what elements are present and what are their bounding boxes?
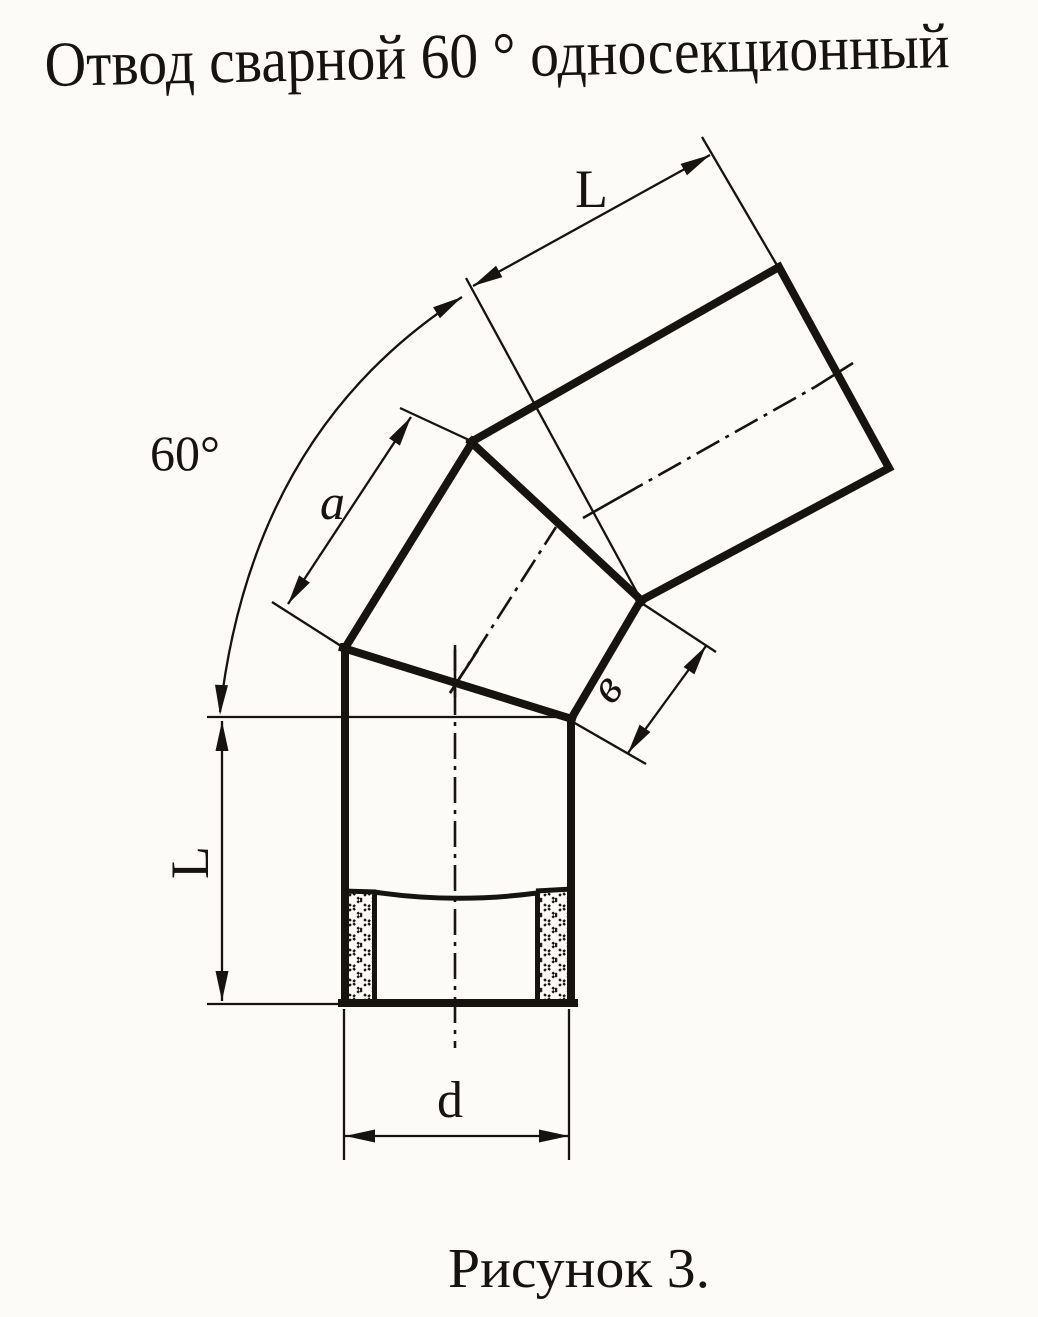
arrowhead xyxy=(628,725,650,753)
arrowhead xyxy=(345,1130,375,1143)
figure-caption: Рисунок 3. xyxy=(448,1238,710,1300)
hatch-band-left xyxy=(347,892,374,1001)
arrowhead xyxy=(539,1130,569,1143)
dimension-d: d xyxy=(344,1009,569,1160)
arrowhead xyxy=(681,155,710,175)
dim-label-L-bottom: L xyxy=(160,846,220,879)
ext-line-pipe-end xyxy=(702,137,778,267)
top-pipe-centerline xyxy=(620,387,815,497)
arrowhead xyxy=(216,971,229,1001)
arrowhead xyxy=(216,721,229,751)
scanned-drawing-page: Отвод сварной 60 ° односекционный xyxy=(0,0,1038,1317)
dimension-60deg-arc: 60° xyxy=(150,297,462,715)
top-pipe-outline xyxy=(471,267,889,601)
dimension-v: в xyxy=(573,604,716,764)
weld-seam-2 xyxy=(471,442,642,601)
elbow-technical-drawing: Отвод сварной 60 ° односекционный xyxy=(0,0,1038,1317)
centerlines xyxy=(450,363,853,1048)
pipe-outlines xyxy=(342,267,889,1003)
dim-label-L-top: L xyxy=(575,159,608,219)
page-title: Отвод сварной 60 ° односекционный xyxy=(44,10,950,100)
arrowhead xyxy=(288,575,310,604)
hatch-band-right xyxy=(538,892,569,1001)
ext-line-weld2 xyxy=(466,278,640,598)
dim-label-d: d xyxy=(437,1072,463,1129)
weld-end-bands xyxy=(343,889,572,1002)
arrowhead xyxy=(215,685,228,715)
dim-label-a: a xyxy=(320,474,345,530)
dim-label-angle: 60° xyxy=(150,425,220,481)
arrowhead xyxy=(684,646,706,674)
top-centerline-left-tick xyxy=(583,497,620,518)
ext-line-a-lower xyxy=(272,602,341,646)
dimension-L-top: L xyxy=(466,137,778,598)
arrowhead xyxy=(389,417,411,446)
bore-edge-curve xyxy=(374,892,537,898)
arrowhead xyxy=(473,266,502,286)
ext-line-a-upper xyxy=(400,408,469,440)
ext-line-v-upper xyxy=(643,604,716,652)
